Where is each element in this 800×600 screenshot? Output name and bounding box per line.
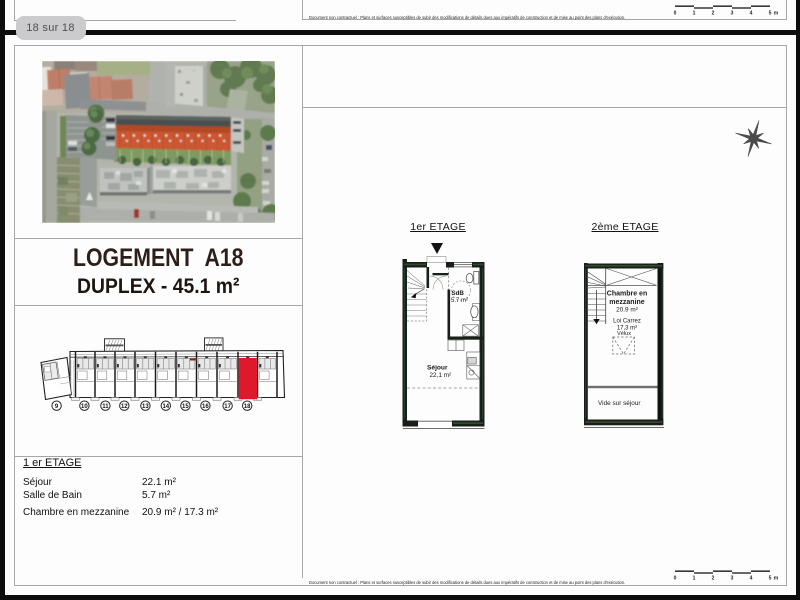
svg-text:5: 5 (769, 575, 772, 581)
svg-text:Vélux: Vélux (617, 331, 631, 337)
svg-text:mezzanine: mezzanine (609, 299, 645, 306)
svg-text:14: 14 (162, 404, 169, 410)
svg-text:m: m (774, 10, 779, 16)
svg-text:15: 15 (182, 404, 189, 410)
svg-text:18: 18 (244, 404, 251, 410)
svg-text:10: 10 (81, 404, 88, 410)
svg-text:3: 3 (731, 575, 734, 581)
svg-text:4: 4 (750, 575, 753, 581)
svg-text:4: 4 (750, 10, 753, 16)
svg-text:1: 1 (693, 575, 696, 581)
svg-text:2: 2 (712, 10, 715, 16)
svg-text:0: 0 (674, 575, 677, 581)
svg-text:Séjour: Séjour (427, 365, 448, 372)
svg-text:SdB: SdB (452, 290, 465, 297)
svg-text:16: 16 (202, 404, 209, 410)
svg-text:20.9 m²: 20.9 m² (616, 307, 638, 314)
svg-text:17: 17 (224, 404, 231, 410)
svg-text:22,1 m²: 22,1 m² (430, 372, 452, 379)
svg-text:13: 13 (142, 404, 149, 410)
svg-text:Chambre en: Chambre en (607, 291, 647, 298)
svg-text:1: 1 (693, 10, 696, 16)
svg-text:m: m (774, 575, 779, 581)
svg-text:5.7 m²: 5.7 m² (451, 298, 468, 304)
svg-text:2: 2 (712, 575, 715, 581)
svg-text:12: 12 (121, 404, 128, 410)
svg-text:Vide sur séjour: Vide sur séjour (598, 400, 641, 407)
svg-text:Loi Carrez: Loi Carrez (613, 319, 641, 325)
svg-text:5: 5 (769, 10, 772, 16)
svg-text:11: 11 (102, 404, 109, 410)
svg-text:0: 0 (674, 10, 677, 16)
svg-text:3: 3 (731, 10, 734, 16)
